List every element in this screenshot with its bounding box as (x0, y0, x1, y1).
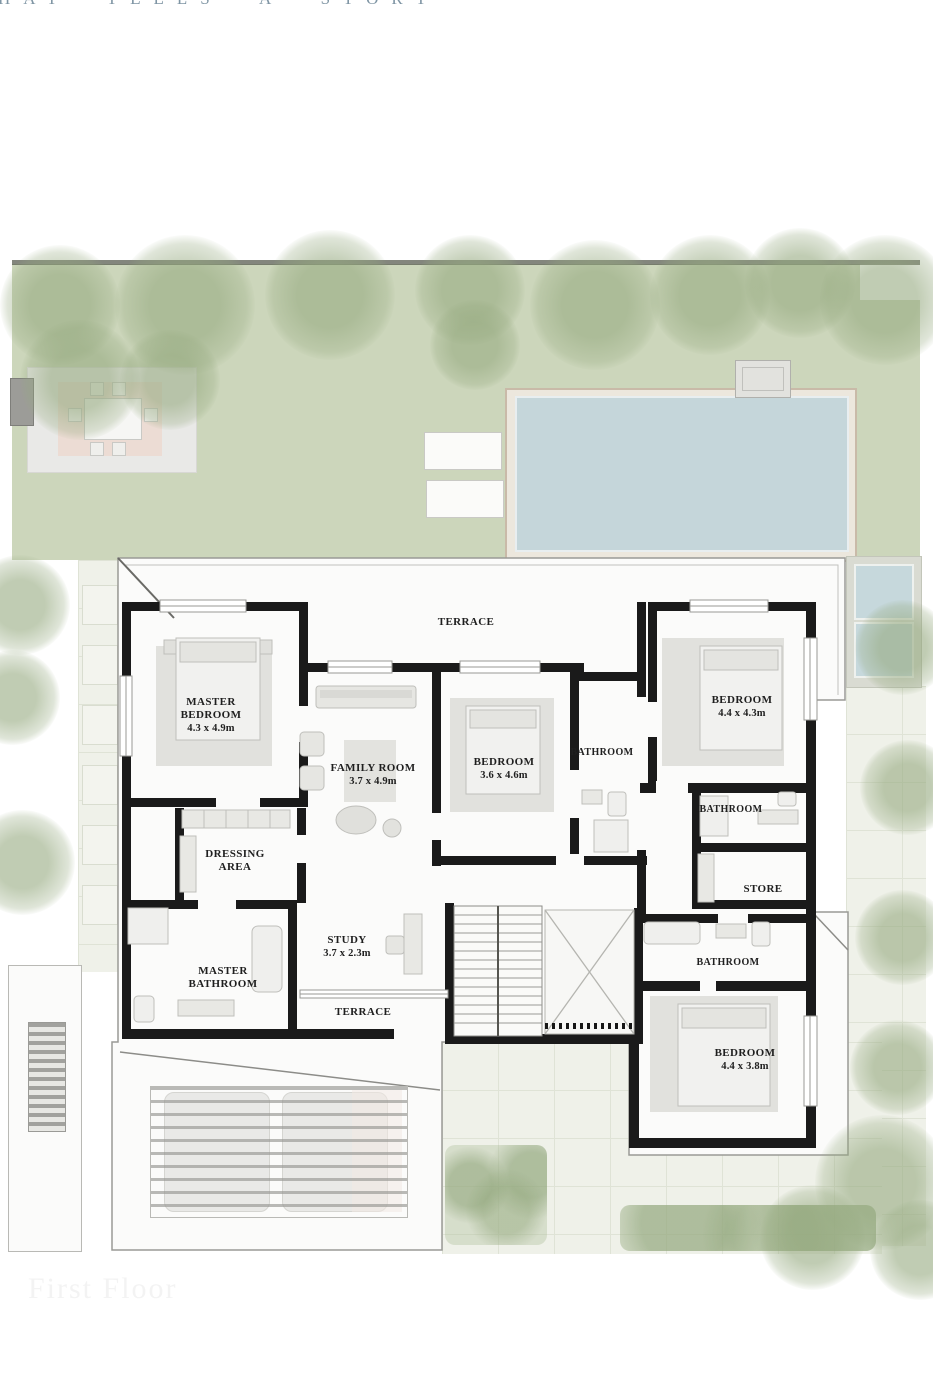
room-name: STUDY (327, 934, 366, 946)
carport-louver-roof (150, 1086, 408, 1218)
room-name: STORE (743, 883, 782, 895)
room-name: TERRACE (438, 616, 495, 628)
void-x (545, 910, 634, 1034)
room-label-terrace-bottom: TERRACE (313, 1006, 413, 1019)
room-name: BEDROOM (715, 1047, 776, 1059)
room-name: BATHROOM (696, 957, 759, 968)
room-name: MASTER BATHROOM (189, 965, 258, 990)
room-label-master-bedroom: MASTER BEDROOM 4.3 x 4.9m (166, 696, 256, 735)
room-name: BATHROOM (570, 747, 633, 758)
room-label-bathroom-2: BATHROOM (681, 804, 781, 816)
room-dims: 4.3 x 4.9m (187, 723, 235, 734)
room-name: BEDROOM (712, 694, 773, 706)
room-dims: 3.7 x 4.9m (349, 776, 397, 787)
room-name: BATHROOM (699, 804, 762, 815)
room-dims: 3.7 x 2.3m (323, 948, 371, 959)
room-label-master-bathroom: MASTER BATHROOM (168, 965, 278, 991)
room-label-terrace-top: TERRACE (416, 616, 516, 629)
room-label-family-room: FAMILY ROOM 3.7 x 4.9m (313, 762, 433, 788)
room-label-dressing-area: DRESSING AREA (195, 848, 275, 874)
faint-floor-caption: First Floor (28, 1272, 178, 1306)
room-label-store: STORE (713, 883, 813, 896)
room-label-bathroom-1: BATHROOM (552, 747, 652, 759)
room-dims: 4.4 x 4.3m (718, 708, 766, 719)
room-label-study: STUDY 3.7 x 2.3m (297, 934, 397, 960)
room-dims: 4.4 x 3.8m (721, 1061, 769, 1072)
tree-icon (760, 1185, 865, 1290)
room-name: DRESSING AREA (205, 848, 264, 873)
room-label-bedroom-1: BEDROOM 3.6 x 4.6m (454, 756, 554, 782)
staircase (454, 906, 542, 1036)
room-name: FAMILY ROOM (331, 762, 416, 774)
gate-louvers (28, 1022, 66, 1132)
room-label-bedroom-2: BEDROOM 4.4 x 4.3m (692, 694, 792, 720)
room-label-bedroom-3: BEDROOM 4.4 x 3.8m (695, 1047, 795, 1073)
room-dims: 3.6 x 4.6m (480, 770, 528, 781)
room-name: TERRACE (335, 1006, 392, 1018)
room-label-bathroom-3: BATHROOM (678, 957, 778, 969)
room-name: MASTER BEDROOM (181, 696, 242, 721)
shrub-bed (445, 1145, 547, 1245)
room-name: BEDROOM (474, 756, 535, 768)
floor-plan-page: HAT TELLS A STORY (0, 0, 933, 1400)
